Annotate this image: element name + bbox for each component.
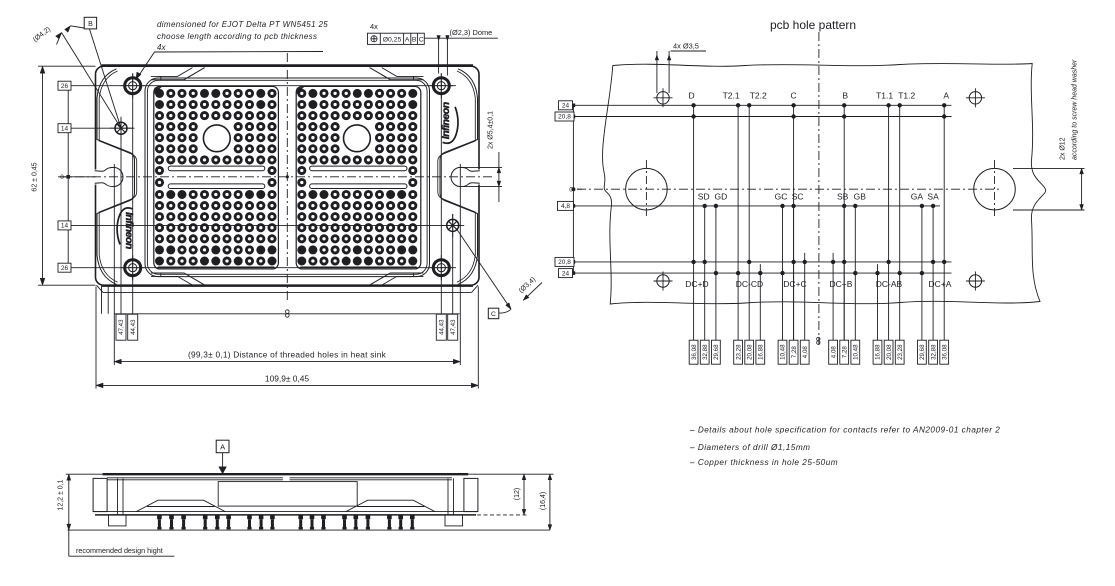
svg-text:DC+D: DC+D xyxy=(685,279,708,289)
svg-text:32,88: 32,88 xyxy=(930,344,937,360)
svg-text:16,88: 16,88 xyxy=(875,344,882,360)
svg-text:32,88: 32,88 xyxy=(702,344,709,360)
svg-text:Infineon: Infineon xyxy=(440,102,452,139)
svg-text:4,08: 4,08 xyxy=(830,346,837,359)
svg-text:7,28: 7,28 xyxy=(841,346,848,359)
svg-text:D: D xyxy=(689,91,695,101)
svg-text:DC+A: DC+A xyxy=(929,279,952,289)
svg-text:2x Ø12: 2x Ø12 xyxy=(1060,137,1067,160)
svg-text:(12): (12) xyxy=(514,488,521,500)
svg-text:(16,4): (16,4) xyxy=(540,492,547,510)
svg-text:12,2 ± 0,1: 12,2 ± 0,1 xyxy=(58,479,65,510)
svg-text:T2.2: T2.2 xyxy=(750,91,767,101)
svg-text:29,68: 29,68 xyxy=(713,344,720,360)
svg-text:44,43: 44,43 xyxy=(130,319,137,335)
svg-text:7,28: 7,28 xyxy=(791,346,798,359)
svg-text:24: 24 xyxy=(562,270,570,277)
svg-text:– Copper thickness in hole 25: – Copper thickness in hole 25-50um xyxy=(689,458,838,467)
svg-text:GB: GB xyxy=(854,192,867,202)
svg-text:(99,3± 0,1) Distance of thread: (99,3± 0,1) Distance of threaded holes i… xyxy=(188,350,387,360)
svg-text:recommended design hight: recommended design hight xyxy=(76,546,163,555)
svg-text:SA: SA xyxy=(927,192,939,202)
svg-text:29,68: 29,68 xyxy=(919,344,926,360)
svg-text:23,28: 23,28 xyxy=(897,344,904,360)
svg-text:16,88: 16,88 xyxy=(758,344,765,360)
svg-text:DC+B: DC+B xyxy=(830,279,853,289)
svg-text:10,48: 10,48 xyxy=(780,344,787,360)
svg-text:Infineon: Infineon xyxy=(123,212,135,249)
svg-text:A: A xyxy=(943,91,949,101)
svg-text:26: 26 xyxy=(61,265,69,272)
svg-text:0: 0 xyxy=(60,174,64,181)
svg-text:DC+C: DC+C xyxy=(783,279,806,289)
svg-text:26: 26 xyxy=(61,83,69,90)
svg-text:20,08: 20,08 xyxy=(746,344,753,360)
svg-text:GC: GC xyxy=(775,192,788,202)
svg-text:10,48: 10,48 xyxy=(853,344,860,360)
svg-text:SD: SD xyxy=(698,192,710,202)
svg-text:2x Ø5,4±0,1: 2x Ø5,4±0,1 xyxy=(488,111,495,149)
svg-text:C: C xyxy=(491,311,496,318)
svg-text:– Details about hole specific: – Details about hole specification for c… xyxy=(689,426,1000,435)
svg-text:0: 0 xyxy=(569,187,573,194)
svg-text:GA: GA xyxy=(911,192,924,202)
svg-text:A: A xyxy=(220,443,225,452)
svg-text:14: 14 xyxy=(61,125,69,132)
svg-text:dimensioned for EJOT Delta PT: dimensioned for EJOT Delta PT WN5451 25 xyxy=(157,20,328,29)
svg-text:20,8: 20,8 xyxy=(558,259,571,266)
svg-text:4x: 4x xyxy=(370,22,378,31)
svg-text:according to screw head washer: according to screw head washer xyxy=(1072,59,1079,160)
svg-text:44,43: 44,43 xyxy=(439,319,446,335)
svg-text:36,08: 36,08 xyxy=(691,344,698,360)
svg-text:T1.1: T1.1 xyxy=(876,91,893,101)
svg-text:A: A xyxy=(405,37,410,44)
svg-text:Ø0,25: Ø0,25 xyxy=(383,37,402,44)
svg-text:36,08: 36,08 xyxy=(941,344,948,360)
svg-text:47,43: 47,43 xyxy=(118,319,125,335)
svg-text:62 ± 0,45: 62 ± 0,45 xyxy=(32,162,39,191)
svg-text:SC: SC xyxy=(792,192,804,202)
svg-text:4,8: 4,8 xyxy=(561,203,570,210)
svg-text:B: B xyxy=(88,21,93,28)
svg-text:pcb hole pattern: pcb hole pattern xyxy=(770,18,856,32)
svg-text:DC-AB: DC-AB xyxy=(876,279,903,289)
svg-text:47,43: 47,43 xyxy=(450,319,457,335)
svg-text:B: B xyxy=(842,91,848,101)
svg-text:T2.1: T2.1 xyxy=(723,91,740,101)
svg-text:(Ø2,3) Dome: (Ø2,3) Dome xyxy=(450,28,493,37)
svg-text:109,9± 0,45: 109,9± 0,45 xyxy=(265,374,310,384)
svg-text:GD: GD xyxy=(715,192,728,202)
svg-text:DC-CD: DC-CD xyxy=(736,279,763,289)
svg-text:choose length according to pcb: choose length according to pcb thickness xyxy=(157,32,317,41)
svg-text:SB: SB xyxy=(837,192,849,202)
svg-text:14: 14 xyxy=(61,223,69,230)
svg-text:20,08: 20,08 xyxy=(886,344,893,360)
svg-text:4,08: 4,08 xyxy=(802,346,809,359)
svg-text:23,28: 23,28 xyxy=(735,344,742,360)
svg-text:B: B xyxy=(412,37,417,44)
svg-text:C: C xyxy=(791,91,797,101)
svg-text:20,8: 20,8 xyxy=(558,114,571,121)
svg-text:4x: 4x xyxy=(157,43,166,52)
svg-text:C: C xyxy=(419,37,424,44)
svg-text:4x Ø3,5: 4x Ø3,5 xyxy=(673,42,699,51)
svg-text:24: 24 xyxy=(562,103,570,110)
svg-text:– Diameters of drill Ø1,15mm: – Diameters of drill Ø1,15mm xyxy=(689,443,810,452)
svg-text:T1.2: T1.2 xyxy=(898,91,915,101)
